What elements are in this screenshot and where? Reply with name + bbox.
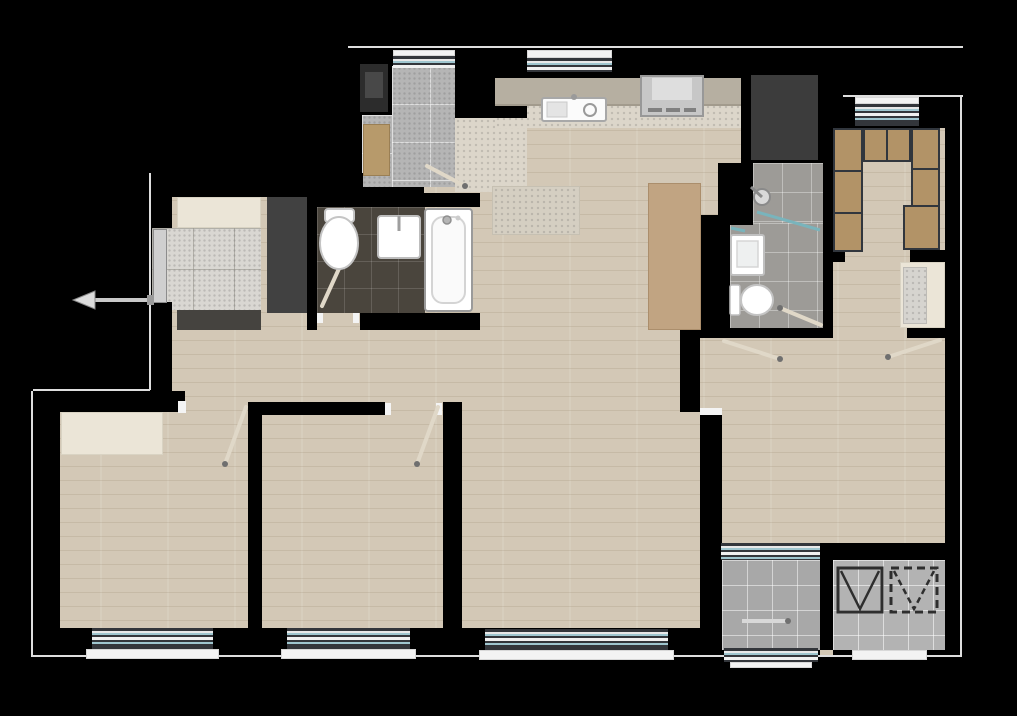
bedroom1-closet bbox=[61, 412, 163, 455]
wall bbox=[443, 402, 462, 628]
balcony-rail-window bbox=[724, 648, 818, 662]
living-room-window bbox=[485, 629, 668, 650]
wardrobe-block bbox=[903, 205, 940, 250]
wall bbox=[248, 402, 385, 415]
entry-door-mat bbox=[177, 310, 261, 330]
wall bbox=[33, 391, 185, 412]
door-jamb bbox=[700, 408, 722, 415]
window-sill bbox=[730, 662, 812, 668]
bedroom2-window bbox=[287, 628, 410, 649]
balcony-floor bbox=[722, 560, 820, 650]
wall bbox=[910, 250, 947, 262]
wall-column bbox=[680, 328, 700, 412]
utility-window bbox=[393, 56, 455, 68]
entry-wardrobe bbox=[267, 197, 307, 313]
wall bbox=[718, 163, 753, 225]
wall bbox=[248, 402, 262, 628]
outline-top bbox=[348, 46, 963, 48]
dining-table bbox=[648, 183, 701, 330]
wardrobe-divider bbox=[834, 170, 862, 172]
entry-shoe-cabinet bbox=[177, 197, 261, 228]
wall bbox=[823, 163, 833, 330]
wall bbox=[340, 44, 362, 188]
entrance-door bbox=[153, 229, 167, 303]
wall bbox=[33, 173, 152, 391]
door-jamb bbox=[353, 313, 359, 323]
outline-step bbox=[33, 389, 150, 391]
entry-stone-floor bbox=[152, 228, 261, 310]
wardrobe-divider bbox=[886, 129, 888, 161]
kitchen-counter bbox=[495, 78, 741, 106]
wall bbox=[700, 215, 722, 338]
window-sill bbox=[86, 649, 219, 659]
bathroom-second-floor bbox=[730, 223, 823, 330]
kitchen-window bbox=[527, 58, 612, 72]
wall bbox=[33, 44, 340, 173]
closet-window bbox=[855, 104, 919, 126]
door-jamb bbox=[385, 403, 391, 415]
bathroom-second-floor bbox=[753, 163, 823, 225]
window-sill bbox=[527, 50, 612, 58]
stone-rug bbox=[492, 186, 580, 235]
door-jamb bbox=[317, 313, 323, 323]
balcony-top-window bbox=[721, 543, 820, 560]
wall bbox=[152, 302, 172, 391]
bathroom-main-floor bbox=[317, 207, 425, 313]
elevator-room-sill bbox=[852, 650, 927, 660]
wall bbox=[33, 412, 60, 655]
utility-bench bbox=[363, 124, 390, 176]
wardrobe-block bbox=[833, 128, 863, 252]
wall bbox=[907, 328, 947, 338]
wall bbox=[152, 197, 172, 228]
outline-left-lower bbox=[31, 391, 33, 655]
window-sill bbox=[281, 649, 416, 659]
wall bbox=[820, 543, 947, 560]
wall bbox=[698, 328, 833, 338]
washing-machine-door bbox=[365, 72, 383, 98]
kitchen-stone-floor bbox=[455, 118, 527, 192]
outline-left-upper bbox=[149, 173, 151, 390]
elevator-room-floor bbox=[833, 560, 947, 650]
door-jamb bbox=[436, 403, 442, 415]
wardrobe-divider bbox=[912, 168, 939, 170]
wall bbox=[700, 415, 722, 650]
wall bbox=[310, 193, 480, 207]
wall bbox=[820, 560, 833, 650]
door-jamb bbox=[178, 401, 186, 413]
bay-window-sill bbox=[903, 267, 927, 324]
wall bbox=[307, 193, 317, 330]
floor-plan bbox=[0, 0, 1017, 716]
storage-closet-body bbox=[751, 75, 818, 160]
window-sill bbox=[855, 97, 919, 104]
wardrobe-divider bbox=[834, 212, 862, 214]
wall bbox=[360, 313, 480, 330]
outline-right bbox=[960, 96, 962, 656]
bathtub-inner bbox=[431, 216, 466, 304]
window-sill bbox=[479, 650, 674, 660]
bedroom1-window bbox=[92, 628, 213, 649]
kitchen-stone-floor bbox=[495, 104, 741, 128]
